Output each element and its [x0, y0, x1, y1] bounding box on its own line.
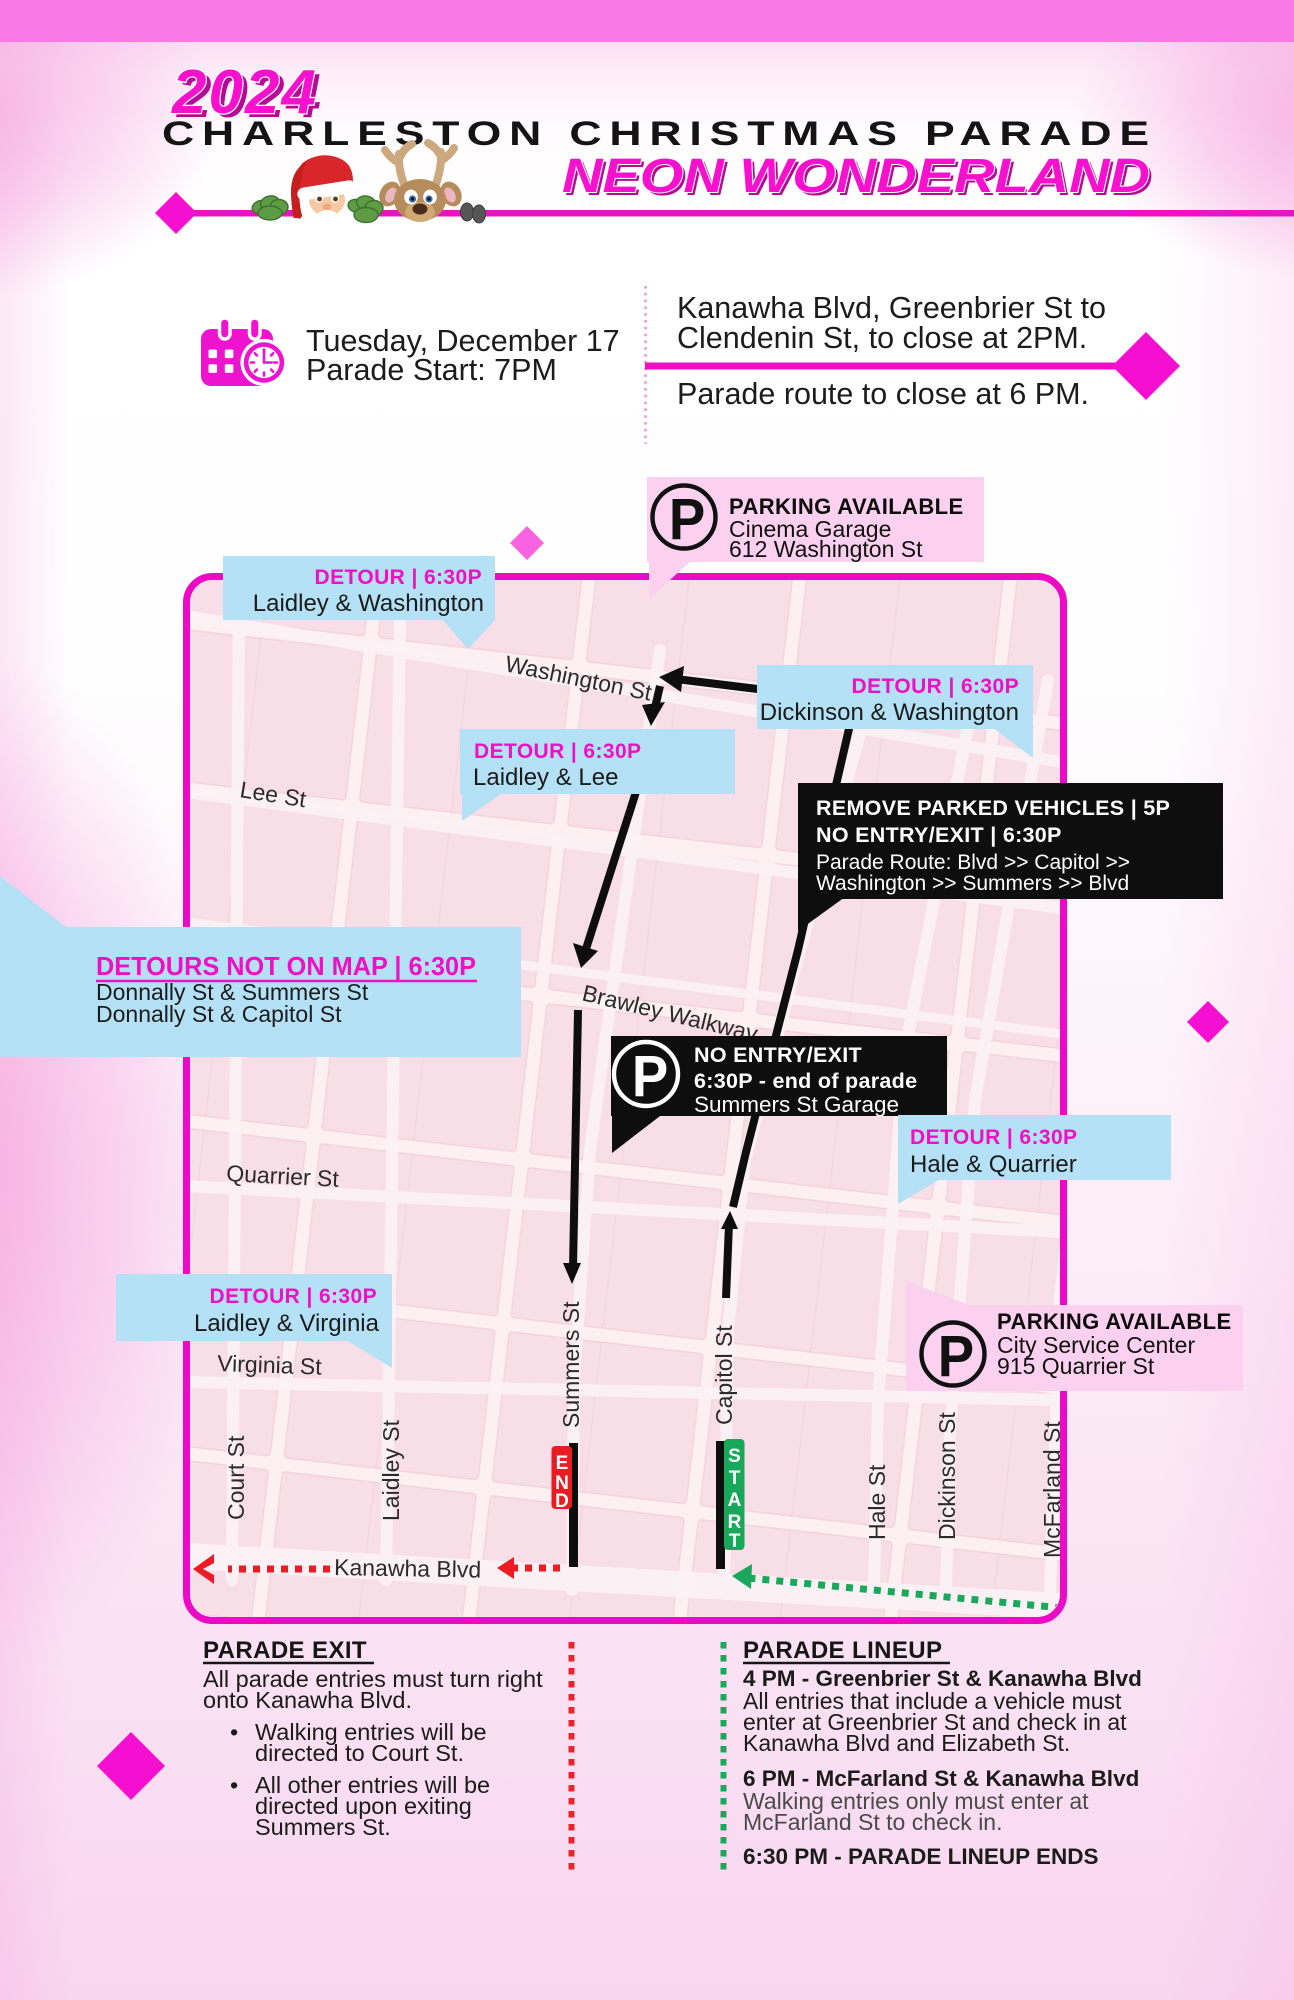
svg-text:NO ENTRY/EXIT | 6:30P: NO ENTRY/EXIT | 6:30P: [816, 823, 1062, 847]
svg-text:S: S: [728, 1446, 741, 1467]
svg-text:Laidley & Virginia: Laidley & Virginia: [194, 1310, 380, 1337]
svg-text:Parade Start: 7PM: Parade Start: 7PM: [306, 353, 557, 387]
svg-text:Kanawha Blvd, Greenbrier St to: Kanawha Blvd, Greenbrier St to: [677, 291, 1106, 325]
svg-text:Kanawha Blvd: Kanawha Blvd: [334, 1554, 481, 1583]
svg-text:P: P: [632, 1043, 668, 1108]
svg-text:DETOUR | 6:30P: DETOUR | 6:30P: [910, 1126, 1077, 1149]
svg-text:Hale St: Hale St: [864, 1464, 890, 1540]
svg-text:Summers St: Summers St: [558, 1301, 584, 1428]
svg-text:Summers St.: Summers St.: [255, 1814, 391, 1840]
svg-text:P: P: [669, 486, 705, 551]
svg-text:Hale & Quarrier: Hale & Quarrier: [910, 1151, 1077, 1178]
svg-text:6:30P - end of parade: 6:30P - end of parade: [694, 1069, 917, 1093]
svg-text:Dickinson St: Dickinson St: [934, 1412, 960, 1540]
svg-text:A: A: [728, 1490, 742, 1511]
svg-text:Washington >> Summers >> Blvd: Washington >> Summers >> Blvd: [816, 872, 1129, 895]
svg-text:915 Quarrier St: 915 Quarrier St: [997, 1353, 1155, 1379]
svg-text:DETOURS NOT ON MAP | 6:30P: DETOURS NOT ON MAP | 6:30P: [96, 951, 476, 981]
svg-text:DETOUR | 6:30P: DETOUR | 6:30P: [852, 675, 1019, 698]
svg-text:6:30 PM - PARADE LINEUP ENDS: 6:30 PM - PARADE LINEUP ENDS: [743, 1844, 1099, 1869]
svg-text:E: E: [556, 1453, 569, 1474]
svg-text:Court St: Court St: [223, 1435, 249, 1520]
svg-text:612 Washington St: 612 Washington St: [729, 536, 923, 562]
svg-text:NO ENTRY/EXIT: NO ENTRY/EXIT: [694, 1043, 862, 1067]
svg-text:McFarland St to check in.: McFarland St to check in.: [743, 1809, 1003, 1835]
svg-text:Donnally St & Capitol St: Donnally St & Capitol St: [96, 1001, 342, 1027]
svg-text:Laidley & Lee: Laidley & Lee: [473, 764, 618, 791]
svg-text:Kanawha Blvd and Elizabeth St.: Kanawha Blvd and Elizabeth St.: [743, 1730, 1070, 1756]
svg-text:Virginia St: Virginia St: [217, 1350, 323, 1380]
svg-text:•: •: [230, 1772, 238, 1798]
svg-text:Capitol St: Capitol St: [711, 1325, 737, 1425]
svg-text:PARKING AVAILABLE: PARKING AVAILABLE: [997, 1309, 1232, 1334]
svg-text:T: T: [729, 1531, 741, 1552]
svg-text:PARADE EXIT: PARADE EXIT: [203, 1637, 367, 1664]
svg-text:D: D: [555, 1491, 569, 1512]
svg-text:Dickinson & Washington: Dickinson & Washington: [760, 699, 1019, 726]
svg-text:Laidley St: Laidley St: [378, 1419, 404, 1521]
svg-text:R: R: [728, 1512, 742, 1533]
svg-text:Summers St Garage: Summers St Garage: [694, 1092, 899, 1117]
svg-text:PARADE LINEUP: PARADE LINEUP: [743, 1637, 942, 1664]
svg-text:NEON WONDERLAND: NEON WONDERLAND: [562, 150, 1150, 203]
svg-text:P: P: [938, 1323, 974, 1388]
svg-text:CHARLESTON CHRISTMAS PARADE: CHARLESTON CHRISTMAS PARADE: [162, 115, 1157, 153]
svg-text:•: •: [230, 1719, 238, 1745]
svg-text:REMOVE PARKED VEHICLES | 5P: REMOVE PARKED VEHICLES | 5P: [816, 796, 1170, 820]
svg-text:directed to Court St.: directed to Court St.: [255, 1740, 464, 1766]
svg-text:onto Kanawha Blvd.: onto Kanawha Blvd.: [203, 1687, 412, 1713]
svg-text:DETOUR | 6:30P: DETOUR | 6:30P: [210, 1285, 377, 1308]
svg-text:Parade Route: Blvd >> Capitol: Parade Route: Blvd >> Capitol >>: [816, 851, 1130, 874]
svg-text:DETOUR | 6:30P: DETOUR | 6:30P: [315, 566, 482, 589]
svg-text:Clendenin St, to close at 2PM.: Clendenin St, to close at 2PM.: [677, 321, 1087, 355]
svg-text:DETOUR | 6:30P: DETOUR | 6:30P: [474, 740, 641, 763]
svg-text:Parade route to close at 6 PM.: Parade route to close at 6 PM.: [677, 377, 1089, 411]
svg-text:Laidley & Washington: Laidley & Washington: [253, 590, 484, 617]
svg-text:T: T: [729, 1468, 741, 1489]
